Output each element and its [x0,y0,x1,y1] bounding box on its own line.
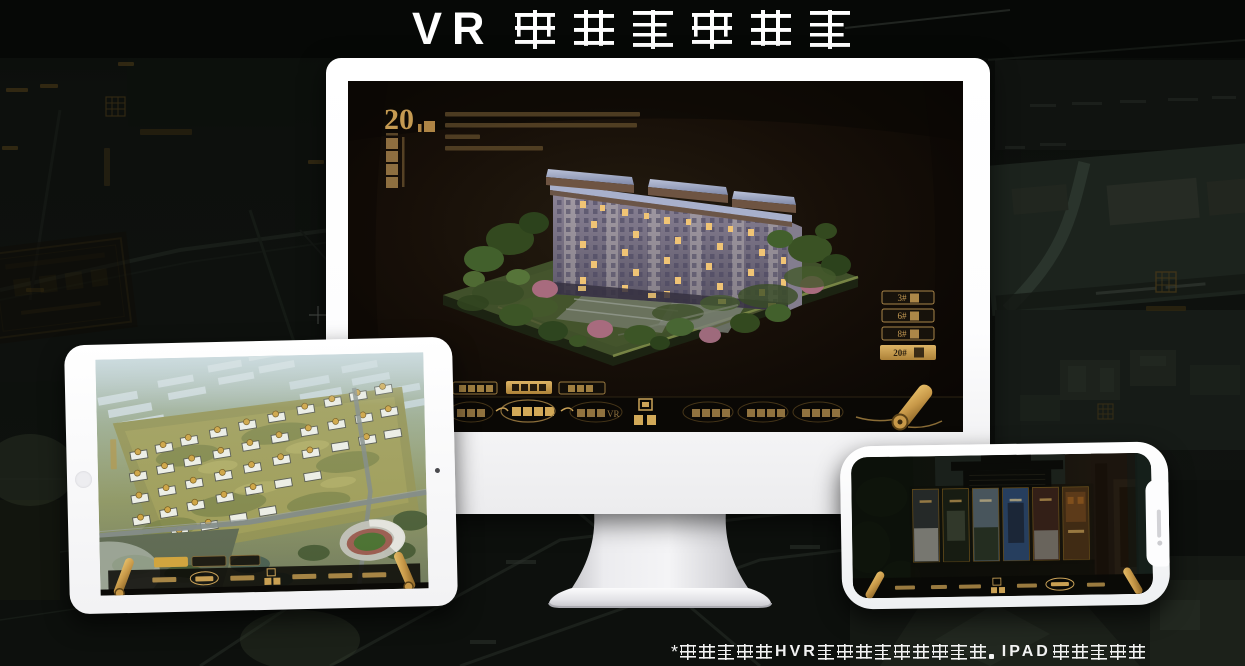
svg-text:VR: VR [607,409,620,419]
svg-text:20: 20 [384,103,414,136]
svg-text:20#: 20# [893,348,907,358]
svg-text:3#: 3# [898,293,908,303]
svg-text:6#: 6# [898,311,908,321]
svg-text:8#: 8# [898,329,908,339]
